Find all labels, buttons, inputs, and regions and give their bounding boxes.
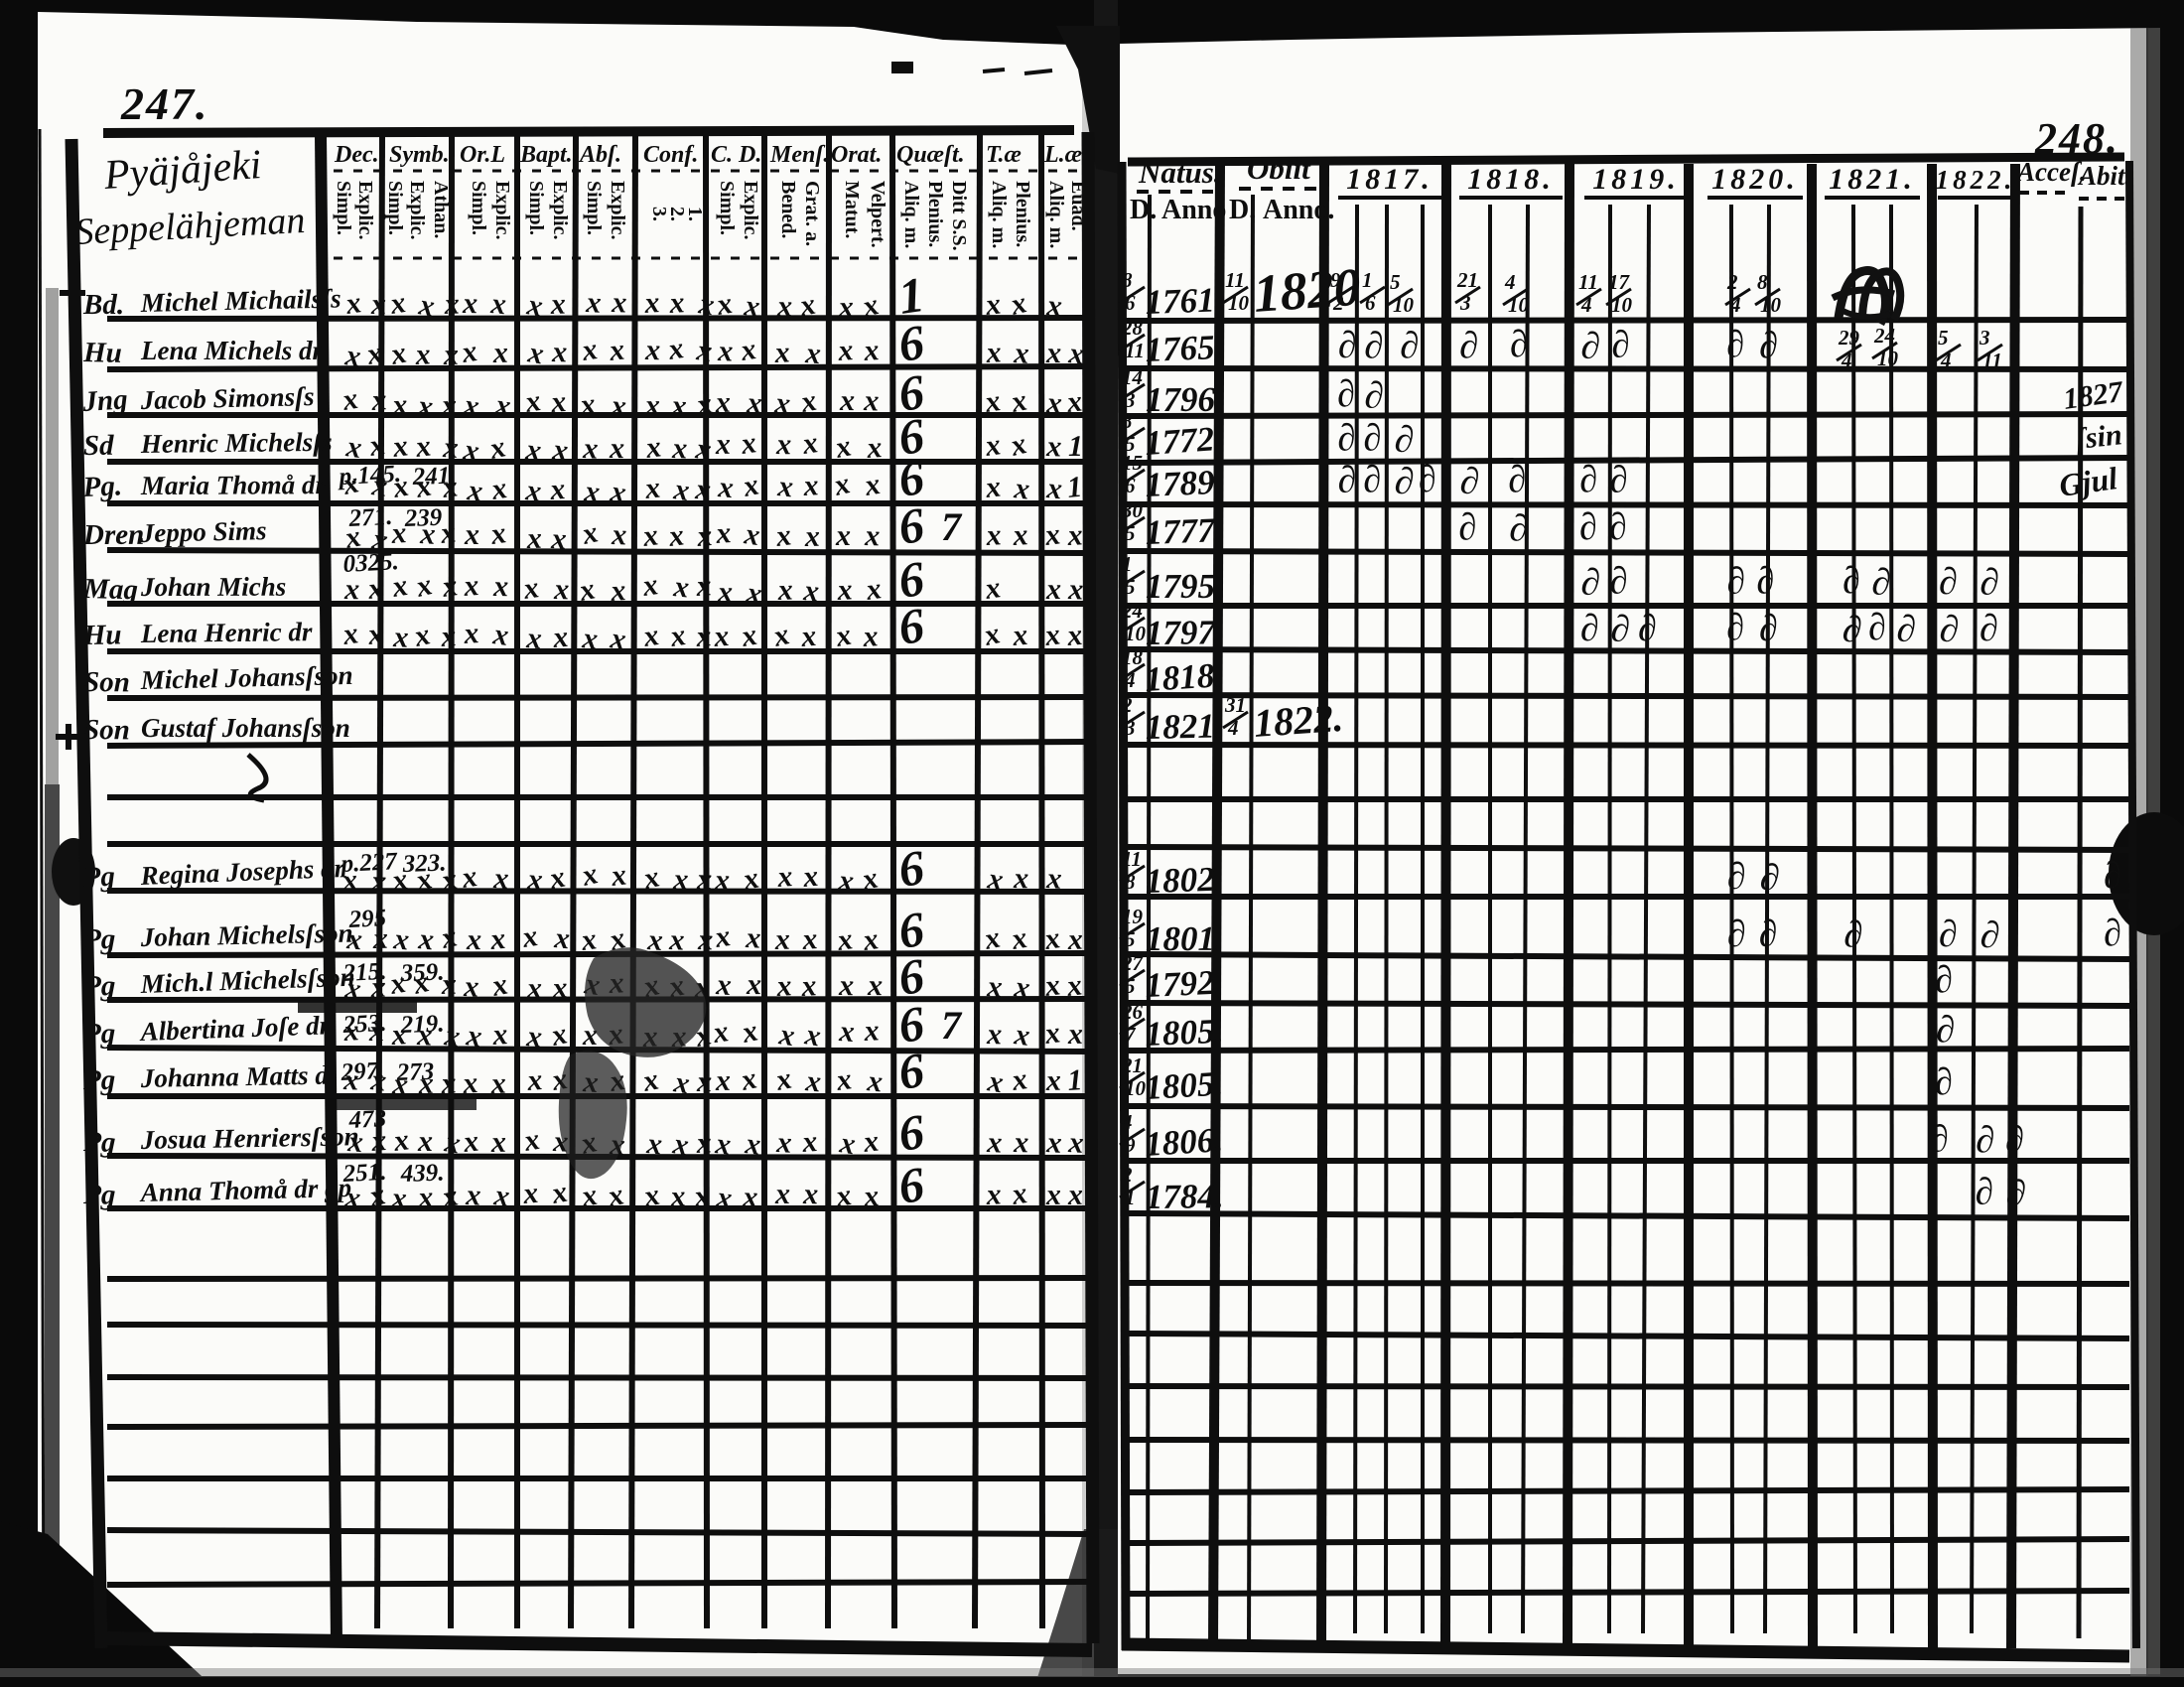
svg-text:Hu: Hu [82,337,122,369]
svg-text:1818.: 1818. [1467,163,1555,196]
svg-text:x: x [864,519,881,552]
svg-text:1784.: 1784. [1146,1177,1224,1216]
svg-text:x: x [714,516,732,550]
svg-text:x: x [492,570,509,603]
svg-text:x: x [801,860,820,894]
svg-text:Johan Michelsſson: Johan Michelsſson [140,918,353,952]
svg-text:x: x [838,969,855,1002]
svg-text:439.: 439. [399,1159,445,1188]
svg-text:7: 7 [941,504,963,549]
svg-text:∂: ∂ [1363,374,1385,417]
svg-text:x: x [862,334,880,367]
svg-text:253.: 253. [341,1010,387,1039]
svg-text:x: x [343,573,360,606]
svg-text:x: x [642,286,660,320]
svg-text:Velpert.: Velpert. [867,181,888,248]
svg-text:x: x [696,863,713,896]
svg-text:∂: ∂ [1608,459,1630,501]
svg-text:1: 1 [1122,552,1133,576]
svg-text:x: x [462,569,479,603]
svg-text:x: x [1066,337,1085,370]
svg-text:Bapt.: Bapt. [519,142,573,168]
svg-text:x: x [644,389,660,422]
svg-text:Euad.: Euad. [1067,181,1089,231]
svg-text:Mag: Mag [82,573,139,606]
svg-text:21: 21 [1456,268,1478,292]
svg-text:Orat.: Orat. [831,142,882,168]
svg-text:∂: ∂ [1579,561,1601,604]
svg-text:11: 11 [1122,847,1142,871]
svg-text:11: 11 [1578,270,1598,294]
svg-text:p.145.: p.145. [337,461,402,491]
svg-text:Simpl.: Simpl. [333,181,354,235]
svg-text:Jeppo Sims: Jeppo Sims [139,515,266,548]
svg-text:Menſ.: Menſ. [769,142,829,168]
svg-text:x: x [839,384,855,417]
svg-text:x: x [1066,518,1083,552]
svg-text:∂: ∂ [1759,325,1779,366]
svg-text:∂: ∂ [1336,459,1357,501]
svg-text:D.: D. [1229,195,1256,225]
svg-text:215.: 215. [341,958,387,987]
svg-text:31: 31 [1224,693,1246,717]
svg-text:x: x [1067,1179,1083,1211]
svg-text:x: x [521,1177,540,1210]
svg-text:x: x [492,337,509,369]
svg-text:x: x [1045,1126,1063,1160]
svg-text:x: x [773,336,791,369]
svg-text:1805.: 1805. [1145,1012,1224,1054]
svg-text:1822.: 1822. [1936,165,2016,195]
svg-text:x: x [1013,337,1030,370]
svg-text:∂: ∂ [1895,608,1917,650]
svg-text:x: x [836,573,853,607]
svg-text:x: x [548,473,566,506]
svg-text:x: x [461,1125,479,1159]
svg-text:∂: ∂ [1974,1171,1994,1213]
svg-text:359.: 359. [399,958,445,987]
svg-text:∂: ∂ [1939,561,1958,603]
svg-text:Explic.: Explic. [549,181,571,239]
svg-text:x: x [775,860,793,894]
svg-text:Simpl.: Simpl. [525,181,547,235]
svg-text:x: x [695,519,713,553]
svg-text:Or.L: Or.L [460,142,505,168]
svg-text:∂: ∂ [1870,561,1892,604]
svg-text:x: x [776,574,793,608]
svg-text:x: x [416,922,435,956]
svg-text:11: 11 [1225,268,1245,292]
svg-text:T.æ: T.æ [986,142,1022,168]
svg-text:1817.: 1817. [1346,163,1433,196]
svg-text:1821.: 1821. [1829,163,1916,196]
svg-text:1819.: 1819. [1592,163,1680,196]
svg-text:x: x [611,518,627,552]
svg-text:1797.: 1797. [1146,613,1224,652]
svg-text:x: x [985,1178,1002,1211]
svg-text:x: x [1066,923,1083,956]
svg-text:1796.: 1796. [1146,380,1224,419]
svg-text:x: x [802,469,820,502]
svg-text:∂: ∂ [1364,325,1385,367]
svg-text:x: x [714,864,730,897]
svg-text:Symb.: Symb. [389,142,450,168]
svg-text:x: x [526,522,543,555]
svg-text:Pg: Pg [82,923,115,955]
svg-text:∂: ∂ [1758,913,1778,955]
svg-text:Pg: Pg [82,1018,115,1050]
svg-text:Jng: Jng [81,383,129,418]
svg-text:Simpl.: Simpl. [468,181,489,235]
svg-text:∂: ∂ [1338,325,1357,366]
svg-text:x: x [1065,619,1084,652]
svg-text:2: 2 [1726,270,1738,294]
svg-text:x: x [742,1181,758,1214]
svg-text:x: x [552,921,571,955]
svg-text:∂: ∂ [1361,417,1383,460]
svg-text:x: x [417,1125,433,1158]
svg-text:Anno.: Anno. [1263,195,1334,225]
svg-text:∂: ∂ [1936,1009,1956,1052]
svg-text:x: x [462,287,478,320]
svg-text:1801.: 1801. [1146,919,1224,958]
svg-text:x: x [1045,573,1061,606]
svg-text:x: x [986,1018,1003,1051]
svg-text:x: x [443,339,459,371]
svg-text:21: 21 [1121,1054,1143,1077]
svg-text:Abit.: Abit. [2077,161,2131,191]
svg-text:x: x [986,970,1004,1004]
svg-text:Johanna Matts d: Johanna Matts d [140,1060,330,1093]
svg-text:Lena Henric dr: Lena Henric dr [140,617,313,648]
svg-text:∂: ∂ [1725,560,1746,603]
svg-text:1795.: 1795. [1146,567,1224,606]
svg-text:Explic.: Explic. [607,181,628,239]
svg-text:1772.: 1772. [1144,419,1224,463]
svg-text:Explic.: Explic. [354,181,376,239]
svg-text:Athan.: Athan. [430,181,452,238]
svg-text:Dec.: Dec. [334,142,379,168]
svg-text:Ditt S.S.: Ditt S.S. [948,181,970,251]
svg-text:8: 8 [1122,409,1133,433]
svg-text:x: x [553,573,570,606]
svg-text:x: x [488,922,507,956]
svg-text:1761.: 1761. [1145,280,1224,322]
svg-text:x: x [745,921,761,955]
svg-text:x: x [439,620,457,653]
svg-text:Bened.: Bened. [777,181,799,238]
svg-text:295: 295 [347,905,387,933]
svg-text:x: x [1045,1179,1061,1211]
svg-text:3.: 3. [648,207,670,221]
svg-text:x: x [1013,862,1029,895]
svg-text:x: x [835,519,851,552]
svg-text:1818.: 1818. [1144,655,1224,699]
svg-text:Abſ.: Abſ. [578,142,621,168]
svg-text:x: x [867,969,883,1002]
svg-text:Anna Thomå dr gp: Anna Thomå dr gp [138,1173,351,1207]
svg-text:x: x [775,1126,793,1160]
svg-text:Maria Thomå dr: Maria Thomå dr [140,470,327,500]
svg-text:x: x [669,1180,687,1213]
svg-text:Aliq. m.: Aliq. m. [1045,181,1067,248]
svg-text:x: x [863,384,880,418]
svg-text:x: x [801,574,820,608]
svg-text:∂: ∂ [1843,914,1864,956]
svg-text:x: x [672,863,689,897]
svg-text:24: 24 [1873,324,1895,348]
svg-text:Simpl.: Simpl. [583,181,605,235]
svg-text:x: x [490,1126,506,1159]
svg-text:ſsin: ſsin [2074,418,2123,456]
svg-text:14: 14 [1122,365,1143,389]
svg-text:x: x [865,431,883,465]
svg-text:C. D.: C. D. [711,142,761,168]
svg-text:0325.: 0325. [342,548,400,578]
svg-text:Josua Henriersſson: Josua Henriersſson [140,1121,359,1155]
svg-text:3: 3 [1979,326,1990,350]
svg-text:x: x [462,617,479,650]
svg-text:x: x [1044,289,1063,323]
svg-text:x: x [1011,518,1028,552]
svg-text:1: 1 [1362,268,1373,292]
svg-text:4: 4 [1504,270,1516,294]
svg-text:219.: 219. [399,1010,445,1039]
svg-text:2: 2 [1121,693,1133,717]
svg-text:x: x [582,432,600,466]
svg-text:x: x [712,620,730,653]
svg-text:x: x [465,1179,482,1212]
svg-text:∂: ∂ [1610,324,1632,366]
svg-text:x: x [1067,1126,1085,1160]
svg-text:x: x [609,574,626,608]
svg-text:x: x [461,1066,478,1100]
svg-text:x: x [802,1178,819,1210]
svg-text:∂: ∂ [1929,1118,1950,1161]
svg-text:Conf.: Conf. [643,142,698,168]
svg-text:Acceſ.: Acceſ. [2015,157,2087,187]
svg-text:x: x [370,383,388,417]
svg-text:∂: ∂ [1727,856,1746,898]
svg-text:15: 15 [1122,451,1143,475]
svg-text:x: x [526,972,542,1005]
svg-text:Bd.: Bd. [82,289,124,321]
svg-text:∂: ∂ [1638,608,1657,649]
svg-text:Pg: Pg [81,861,116,894]
svg-text:Jacob Simonsſs: Jacob Simonsſs [139,381,314,415]
svg-text:L.æ: L.æ [1043,142,1082,168]
svg-text:x: x [697,923,714,956]
svg-text:297.: 297. [340,1057,385,1086]
svg-text:x: x [863,1014,881,1048]
svg-text:251.: 251. [341,1159,387,1188]
svg-text:x: x [986,1126,1003,1160]
svg-text:1806.: 1806. [1144,1120,1224,1164]
svg-text:8: 8 [1122,268,1133,292]
svg-text:Pg: Pg [82,1179,116,1211]
svg-text:1792.: 1792. [1145,963,1224,1005]
svg-text:x: x [549,288,566,321]
svg-text:x: x [1045,862,1063,896]
svg-text:Pg: Pg [82,970,116,1002]
svg-text:∂: ∂ [1580,608,1599,649]
svg-text:x: x [775,470,794,503]
svg-text:239: 239 [403,504,443,532]
svg-text:Simpl.: Simpl. [384,181,406,235]
svg-text:x: x [715,428,731,461]
svg-text:x: x [525,1063,543,1097]
svg-text:x: x [464,518,479,551]
svg-text:p.227: p.227 [339,848,399,878]
svg-text:1: 1 [1066,1063,1083,1097]
svg-text:x: x [695,1126,712,1160]
svg-text:x: x [390,388,408,422]
svg-text:Quæſt.: Quæſt. [896,142,965,168]
svg-text:x: x [717,335,734,368]
svg-text:x: x [775,969,793,1003]
svg-text:1: 1 [1068,430,1083,463]
svg-text:∂: ∂ [2005,1119,2024,1161]
svg-text:2: 2 [1121,1163,1133,1187]
svg-text:x: x [714,968,732,1002]
svg-text:x: x [694,620,712,653]
svg-text:x: x [836,864,855,898]
svg-text:x: x [524,1020,543,1054]
svg-text:Aliq. m.: Aliq. m. [900,181,922,248]
svg-text:x: x [551,971,569,1005]
svg-text:1820.: 1820. [1711,163,1799,196]
svg-text:x: x [985,336,1003,369]
svg-text:D.: D. [1130,195,1157,225]
svg-text:x: x [526,863,544,897]
svg-text:x: x [1044,1064,1061,1097]
svg-text:Plenius.: Plenius. [1012,181,1033,247]
svg-text:x: x [775,428,792,461]
svg-text:24: 24 [1121,599,1143,623]
svg-text:∂: ∂ [1976,1119,1995,1162]
svg-text:Simpl.: Simpl. [716,181,738,235]
svg-text:∂: ∂ [1759,608,1778,649]
svg-text:1805.: 1805. [1144,1064,1224,1107]
svg-text:Pg: Pg [82,1126,116,1159]
svg-text:x: x [609,432,624,465]
svg-text:x: x [607,334,625,367]
svg-text:Gustaf Johansſson: Gustaf Johansſson [141,713,350,743]
svg-text:Michel Michailsſs: Michel Michailsſs [139,283,341,318]
svg-text:x: x [1013,1126,1029,1159]
svg-text:∂: ∂ [1459,325,1479,366]
svg-text:x: x [443,288,460,321]
svg-text:x: x [440,1066,458,1100]
svg-text:∂: ∂ [1727,914,1746,955]
svg-text:Grat. a.: Grat. a. [801,181,823,246]
svg-text:5: 5 [1938,326,1949,350]
svg-text:1765.: 1765. [1145,328,1224,369]
svg-text:x: x [492,862,510,896]
svg-text:x: x [836,334,854,367]
svg-text:Obiit: Obiit [1247,151,1311,186]
svg-text:x: x [1045,337,1061,369]
svg-text:323.: 323. [401,849,447,878]
svg-text:x: x [644,1127,663,1161]
svg-text:Henric Michelsſs: Henric Michelsſs [140,427,333,459]
svg-text:x: x [489,1067,506,1100]
svg-text:5: 5 [1390,270,1401,294]
svg-text:∂: ∂ [1335,417,1357,460]
svg-text:x: x [862,1180,881,1213]
svg-text:Matut.: Matut. [841,181,863,238]
svg-text:x: x [985,518,1003,552]
svg-text:1.: 1. [1065,470,1091,504]
svg-text:Pg.: Pg. [81,470,123,503]
svg-text:∂: ∂ [1979,561,2000,604]
svg-text:x: x [524,622,542,655]
svg-text:x: x [370,288,386,321]
svg-text:x: x [668,286,686,320]
svg-text:x: x [695,569,713,603]
svg-text:271.: 271. [347,503,393,532]
svg-text:273: 273 [395,1058,434,1086]
svg-text:x: x [803,337,822,370]
svg-text:Hu: Hu [82,619,122,651]
svg-text:x: x [774,1178,790,1210]
svg-text:∂: ∂ [1608,560,1630,603]
svg-text:x: x [861,1125,880,1159]
svg-text:x: x [715,386,732,419]
svg-text:x: x [716,471,735,504]
svg-text:Son: Son [83,714,130,746]
svg-text:4: 4 [1121,1110,1133,1134]
svg-text:x: x [776,290,792,323]
svg-text:Michel Johansſson: Michel Johansſson [139,660,352,695]
svg-text:x: x [693,473,712,506]
svg-text:x: x [800,922,818,956]
svg-text:8: 8 [1757,270,1768,294]
svg-text:Son: Son [83,666,130,698]
svg-text:x: x [862,620,880,653]
svg-text:Explic.: Explic. [740,181,761,239]
svg-text:x: x [1045,430,1062,464]
svg-text:1822.: 1822. [1252,695,1344,746]
svg-text:1789.: 1789. [1145,463,1224,504]
svg-text:Explic.: Explic. [491,181,513,239]
svg-text:x: x [611,286,627,320]
svg-text:x: x [773,923,790,956]
svg-text:x: x [609,389,627,423]
svg-text:x: x [488,287,507,321]
svg-text:x: x [746,968,761,1001]
svg-text:x: x [463,970,480,1004]
svg-text:∂: ∂ [1456,505,1479,549]
svg-text:7: 7 [941,1003,963,1048]
svg-text:Johan Michs: Johan Michs [140,572,286,602]
svg-text:Explic.: Explic. [406,181,428,239]
svg-text:x: x [1011,619,1029,652]
svg-text:Sd: Sd [83,430,114,462]
svg-text:x: x [837,291,854,324]
svg-text:x: x [670,389,688,423]
svg-text:∂: ∂ [1609,608,1631,650]
svg-text:∂: ∂ [1509,507,1530,550]
svg-text:∂: ∂ [1754,559,1777,603]
svg-text:Lena Michels dr: Lena Michels dr [140,336,323,365]
svg-text:x: x [800,1125,818,1159]
svg-text:∂: ∂ [1579,325,1601,367]
svg-text:x: x [799,969,817,1003]
svg-text:Dren: Dren [82,519,144,551]
svg-text:x: x [442,431,460,465]
svg-text:Natus.: Natus. [1138,155,1222,190]
